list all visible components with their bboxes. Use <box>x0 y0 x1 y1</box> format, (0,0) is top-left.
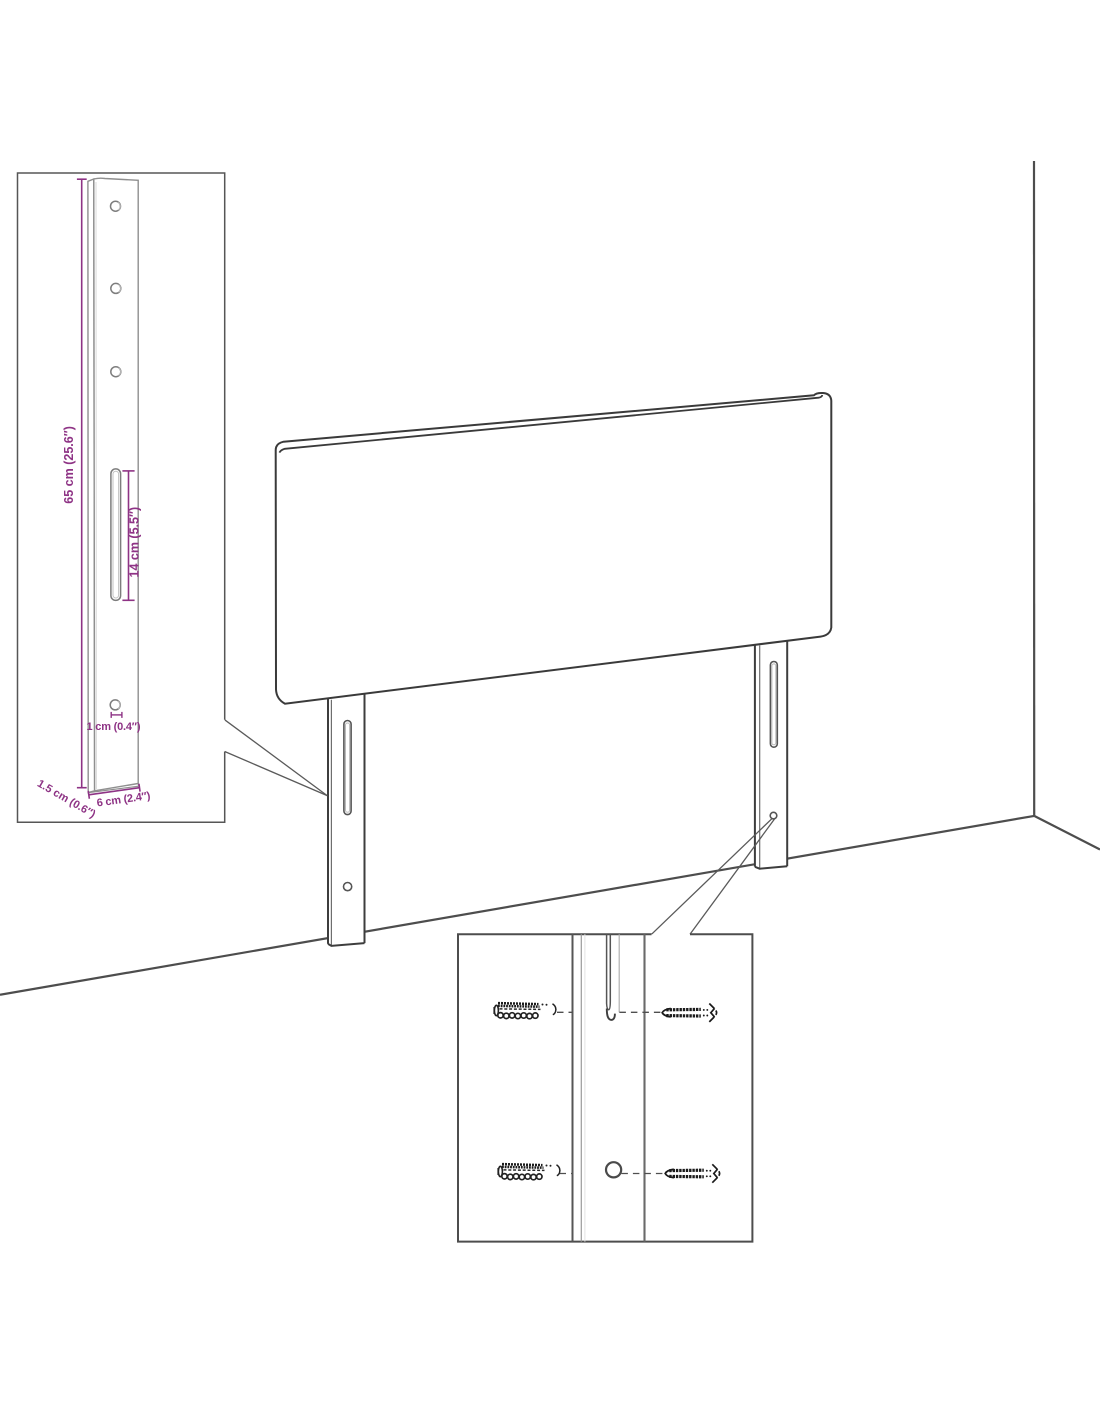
svg-text:1 cm (0.4″): 1 cm (0.4″) <box>87 721 141 733</box>
svg-text:65 cm (25.6″): 65 cm (25.6″) <box>62 426 76 504</box>
svg-text:14 cm (5.5″): 14 cm (5.5″) <box>128 507 142 578</box>
